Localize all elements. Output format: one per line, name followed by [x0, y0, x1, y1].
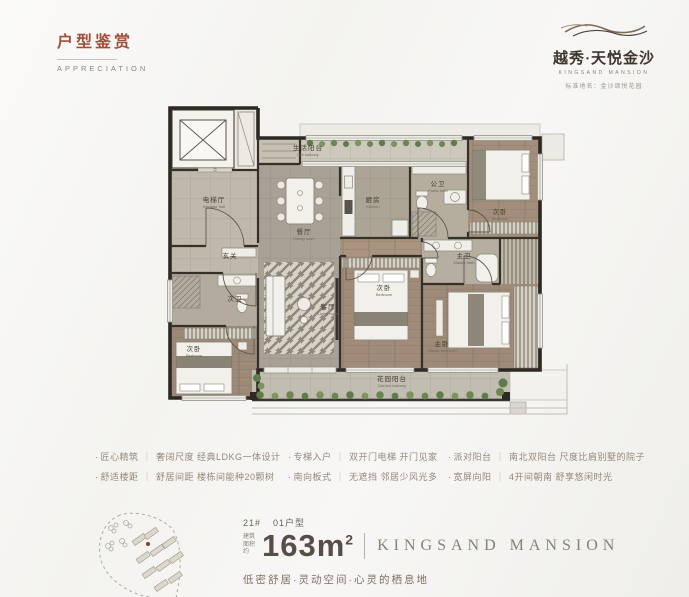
room-label-bedroom-a-zh: 次卧 [493, 207, 508, 216]
minimap-location-dot [146, 542, 150, 546]
elevator [172, 110, 254, 172]
bullet-dot: · [95, 452, 99, 462]
room-label-kitchen-en: Kitchen [366, 204, 379, 209]
room-label-master-bath-en: Master bath [453, 260, 474, 265]
feature-item: ·专梯入户｜双开门电梯 开门见家 [288, 450, 438, 463]
bullet-dot: · [288, 452, 292, 462]
brand-name-zh: 越秀·天悦金沙 [536, 47, 672, 68]
bullet-dot: · [95, 472, 99, 482]
bullet-dot: · [448, 452, 452, 462]
wave-logo-icon [559, 20, 649, 40]
bullet-dot: · [448, 472, 452, 482]
room-label-bedroom-b-en: Bedroom [186, 353, 203, 358]
tagline: 低密舒居·灵动空间·心灵的栖息地 [243, 572, 429, 587]
room-label-living-zh: 客厅 [321, 302, 336, 311]
room-label-bedroom-c-en: Bedroom [376, 292, 393, 297]
feature-item: ·派对阳台｜南北双阳台 尺度比肩别墅的院子 [448, 450, 645, 463]
page-title: 户型鉴赏 [57, 28, 148, 52]
room-label-entry-zh: 玄关 [223, 251, 238, 260]
page-header: 户型鉴赏 APPRECIATION [57, 28, 148, 73]
room-label-life-balcony-zh: 生活阳台 [293, 143, 323, 152]
dining-table [277, 178, 323, 224]
bedroom-c-furniture [342, 258, 420, 340]
bullet-dot: · [288, 472, 292, 482]
feature-item: ·南向板式｜无遮挡 邻居少风光多 [288, 470, 438, 483]
room-label-master-bath-zh: 主卫 [457, 251, 472, 260]
unit-type: 01户型 [273, 518, 305, 528]
area-value: 163m2 [262, 530, 354, 561]
room-label-dining-zh: 餐厅 [297, 227, 312, 236]
title-underline [57, 59, 117, 60]
room-label-elevator-hall-zh: 电梯厅 [203, 195, 226, 204]
feature-item: ·舒适楼距｜舒居间距 楼栋间能种20颗树 [95, 470, 275, 483]
room-label-public-bath-en: Public bath [428, 188, 448, 193]
brand-wordmark: KINGSAND MANSION [377, 537, 619, 555]
brand-name-en: KINGSAND MANSION [536, 70, 672, 76]
feature-item: ·匠心精筑｜奢阔尺度 经典LDKG一体设计 [95, 450, 281, 463]
area-prefix: 建筑面积约 [243, 534, 259, 557]
floor-plan-image: 电梯厅 Elevator hall 生活阳台 Life balcony 餐厅 D… [70, 98, 570, 438]
feature-item: ·宽屏向阳｜4开间朝南 舒享悠闲时光 [448, 470, 613, 483]
vertical-divider [364, 533, 365, 559]
area-row: 建筑面积约 163m2 KINGSAND MANSION [243, 530, 619, 561]
room-label-life-balcony-en: Life balcony [297, 152, 318, 157]
room-label-garden-balcony-zh: 花园阳台 [377, 374, 407, 383]
room-label-public-bath-zh: 公卫 [431, 180, 446, 188]
room-label-bedroom-b-zh: 次卧 [187, 344, 202, 353]
brand-logo: 越秀·天悦金沙 KINGSAND MANSION 标准地名：金沙颂悦花园 [536, 20, 672, 90]
room-label-garden-balcony-en: Garden balcony [378, 383, 406, 388]
room-label-bath-b-zh: 次卫 [228, 294, 243, 303]
room-label-bedroom-c-zh: 次卧 [377, 283, 392, 292]
room-label-bedroom-a-en: Bedroom [492, 216, 509, 221]
room-label-kitchen-zh: 厨房 [366, 195, 381, 204]
page-title-en: APPRECIATION [57, 64, 148, 73]
standard-name: 标准地名：金沙颂悦花园 [536, 81, 672, 90]
room-label-master-bedroom-en: Master bedroom [427, 348, 457, 353]
room-label-dining-en: Dining room [293, 236, 315, 241]
room-label-elevator-hall-en: Elevator hall [203, 204, 225, 209]
site-plan-minimap [78, 512, 193, 597]
room-label-living-en: Living room [318, 311, 339, 316]
building-number: 21# [243, 518, 261, 528]
minimap-trees [106, 521, 133, 552]
room-label-master-bedroom-zh: 主卧 [435, 339, 450, 348]
